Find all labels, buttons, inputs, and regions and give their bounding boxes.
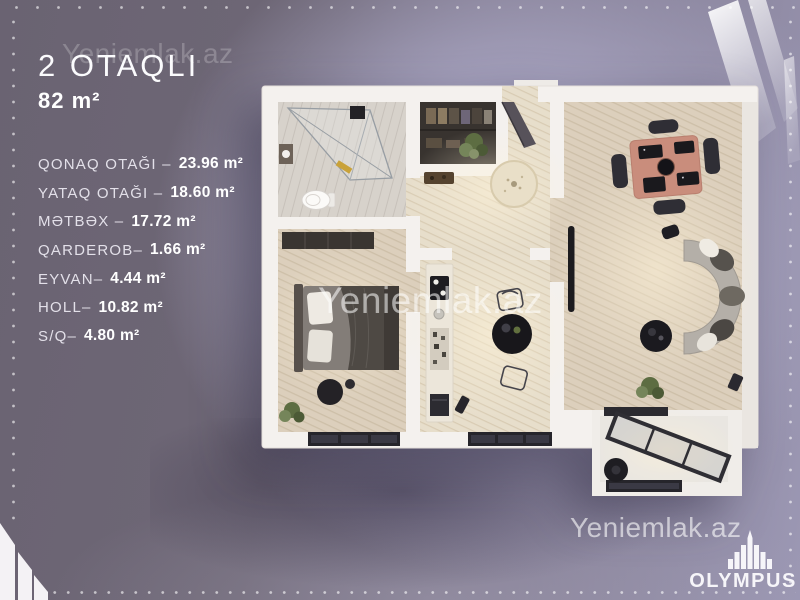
- pillow: [307, 291, 334, 325]
- cooktop: [430, 276, 449, 300]
- counter-decor: [430, 328, 449, 370]
- oven: [430, 394, 449, 416]
- room-area-value: 4.44 m²: [110, 270, 166, 288]
- olympus-brand-name: OLYMPUS: [683, 570, 800, 593]
- bed: [294, 284, 399, 372]
- room-area-value: 17.72 m²: [131, 213, 195, 231]
- room-area-value: 1.66 m²: [150, 241, 206, 259]
- bedroom-rug: [317, 379, 343, 405]
- page-title: 2 OTAQLI: [38, 48, 243, 84]
- room-label: YATAQ OTAĞI –: [38, 185, 163, 202]
- room-row: S/Q– 4.80 m²: [38, 322, 243, 351]
- room-area-value: 23.96 m²: [179, 155, 243, 173]
- coffee-table: [640, 320, 672, 352]
- room-list: QONAQ OTAĞI – 23.96 m² YATAQ OTAĞI – 18.…: [38, 150, 243, 351]
- room-row: MƏTBƏX – 17.72 m²: [38, 207, 243, 236]
- balcony-door: [604, 407, 668, 416]
- tv: [568, 226, 575, 312]
- room-area-value: 4.80 m²: [84, 327, 140, 345]
- flyer: 2 OTAQLI 82 m² QONAQ OTAĞI – 23.96 m² YA…: [0, 0, 800, 600]
- room-row: HOLL– 10.82 m²: [38, 293, 243, 322]
- room-label: MƏTBƏX –: [38, 213, 124, 230]
- toilet: [302, 191, 335, 210]
- hall-bench: [424, 172, 454, 184]
- total-area: 82 m²: [38, 88, 243, 114]
- dotted-border-top: [6, 3, 796, 12]
- room-row: EYVAN– 4.44 m²: [38, 265, 243, 294]
- room-row: QARDEROB– 1.66 m²: [38, 236, 243, 265]
- hall-rug: [491, 161, 537, 207]
- room-label: EYVAN–: [38, 271, 103, 288]
- kitchen-table: [492, 314, 532, 354]
- room-row: QONAQ OTAĞI – 23.96 m²: [38, 150, 243, 179]
- olympus-logo-icon: [727, 522, 775, 570]
- info-panel: 2 OTAQLI 82 m² QONAQ OTAĞI – 23.96 m² YA…: [38, 48, 243, 351]
- stair-bars-decoration: [0, 440, 60, 600]
- room-label: QARDEROB–: [38, 242, 143, 259]
- pillow: [307, 329, 333, 363]
- room-area-value: 10.82 m²: [99, 299, 163, 317]
- bath-shelf: [350, 106, 365, 119]
- room-area-value: 18.60 m²: [170, 184, 234, 202]
- room-label: S/Q–: [38, 328, 77, 345]
- room-label: QONAQ OTAĞI –: [38, 156, 172, 173]
- floor-plan: [252, 80, 768, 526]
- room-label: HOLL–: [38, 299, 92, 316]
- room-row: YATAQ OTAĞI – 18.60 m²: [38, 179, 243, 208]
